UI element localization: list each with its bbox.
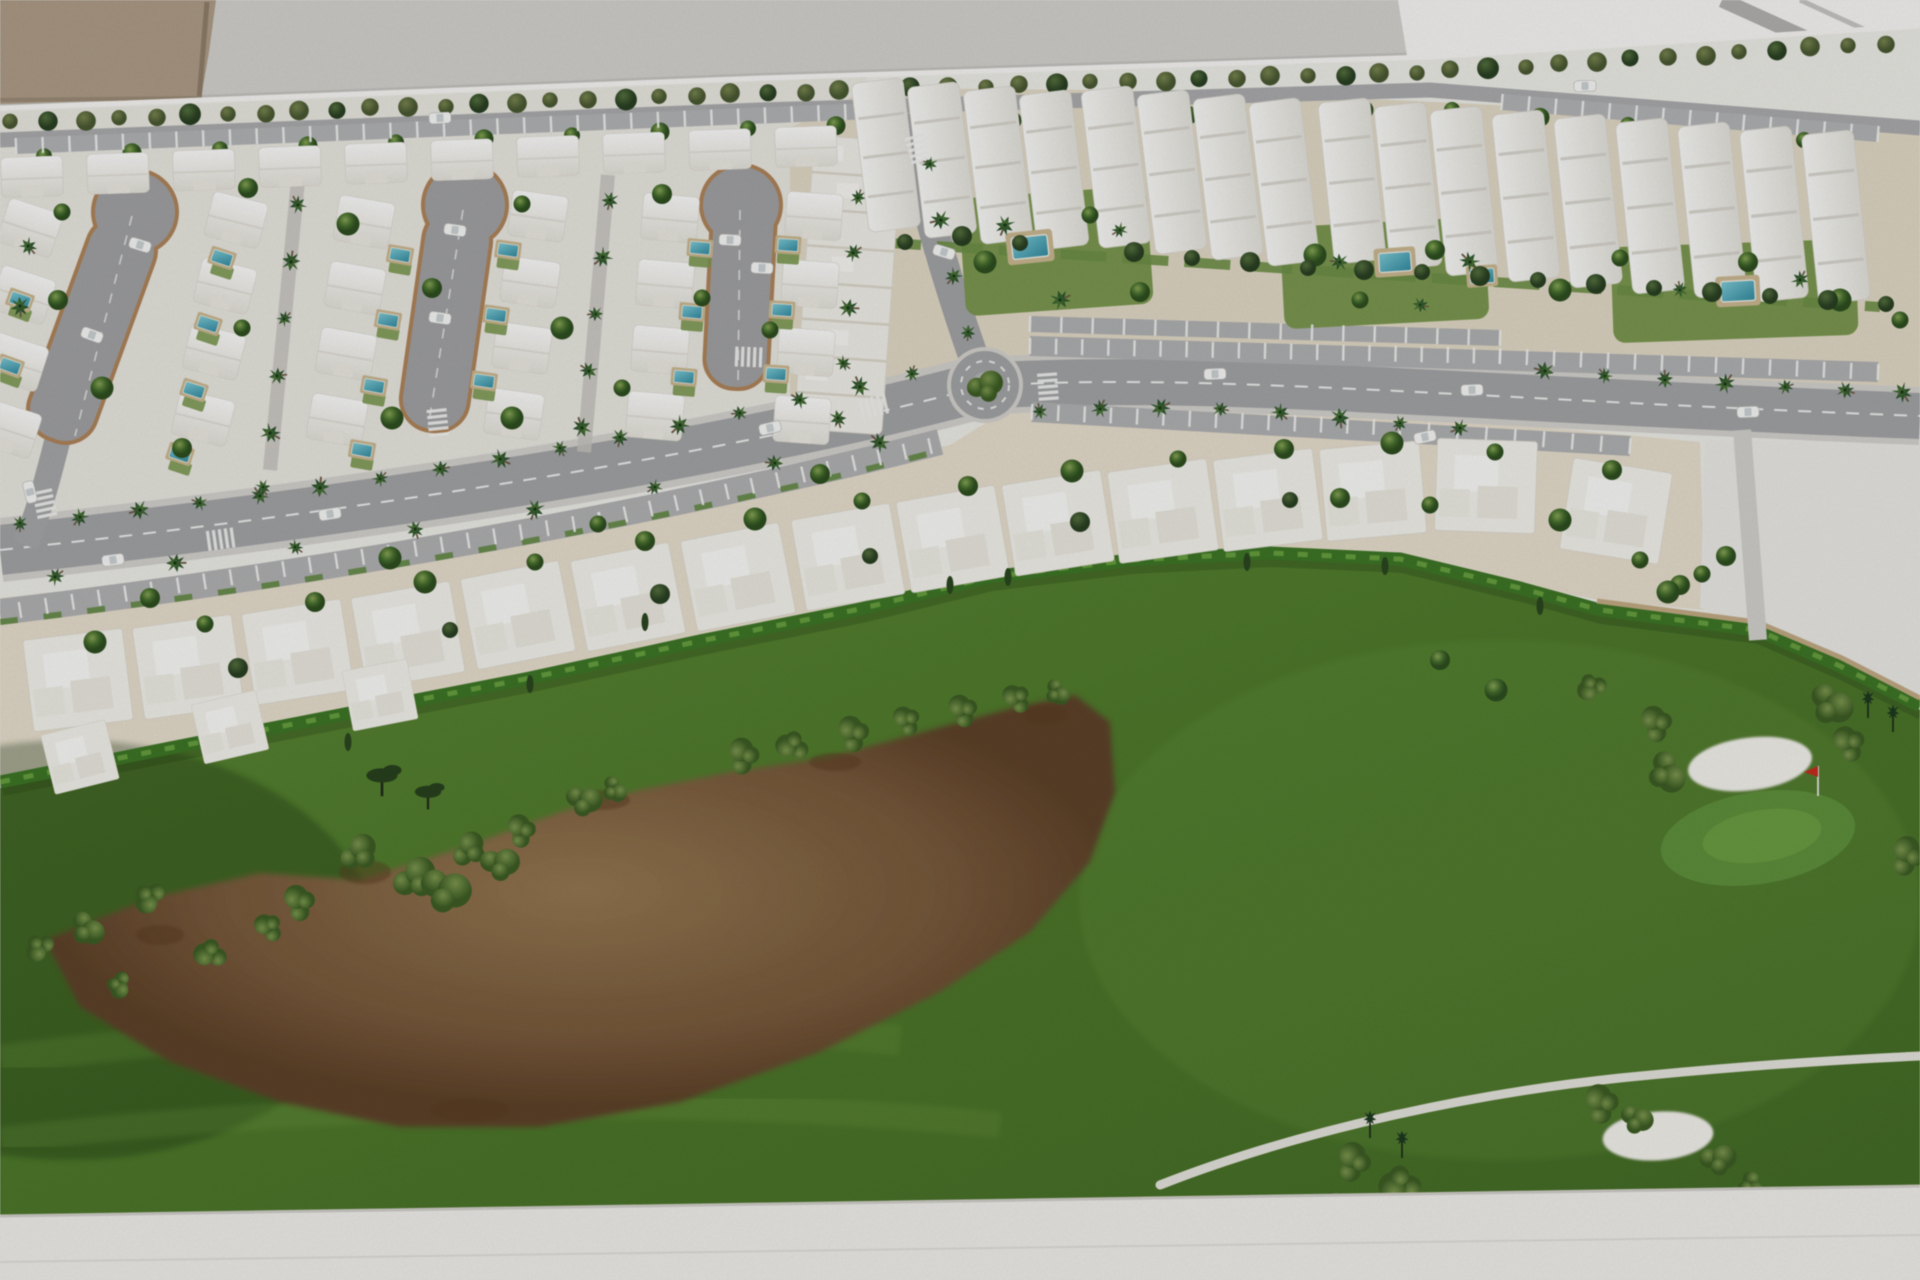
photo-of-architectural-scale-model [0, 0, 1920, 1280]
scale-model-scene [0, 0, 1920, 1280]
photo-grain [0, 0, 1920, 1280]
